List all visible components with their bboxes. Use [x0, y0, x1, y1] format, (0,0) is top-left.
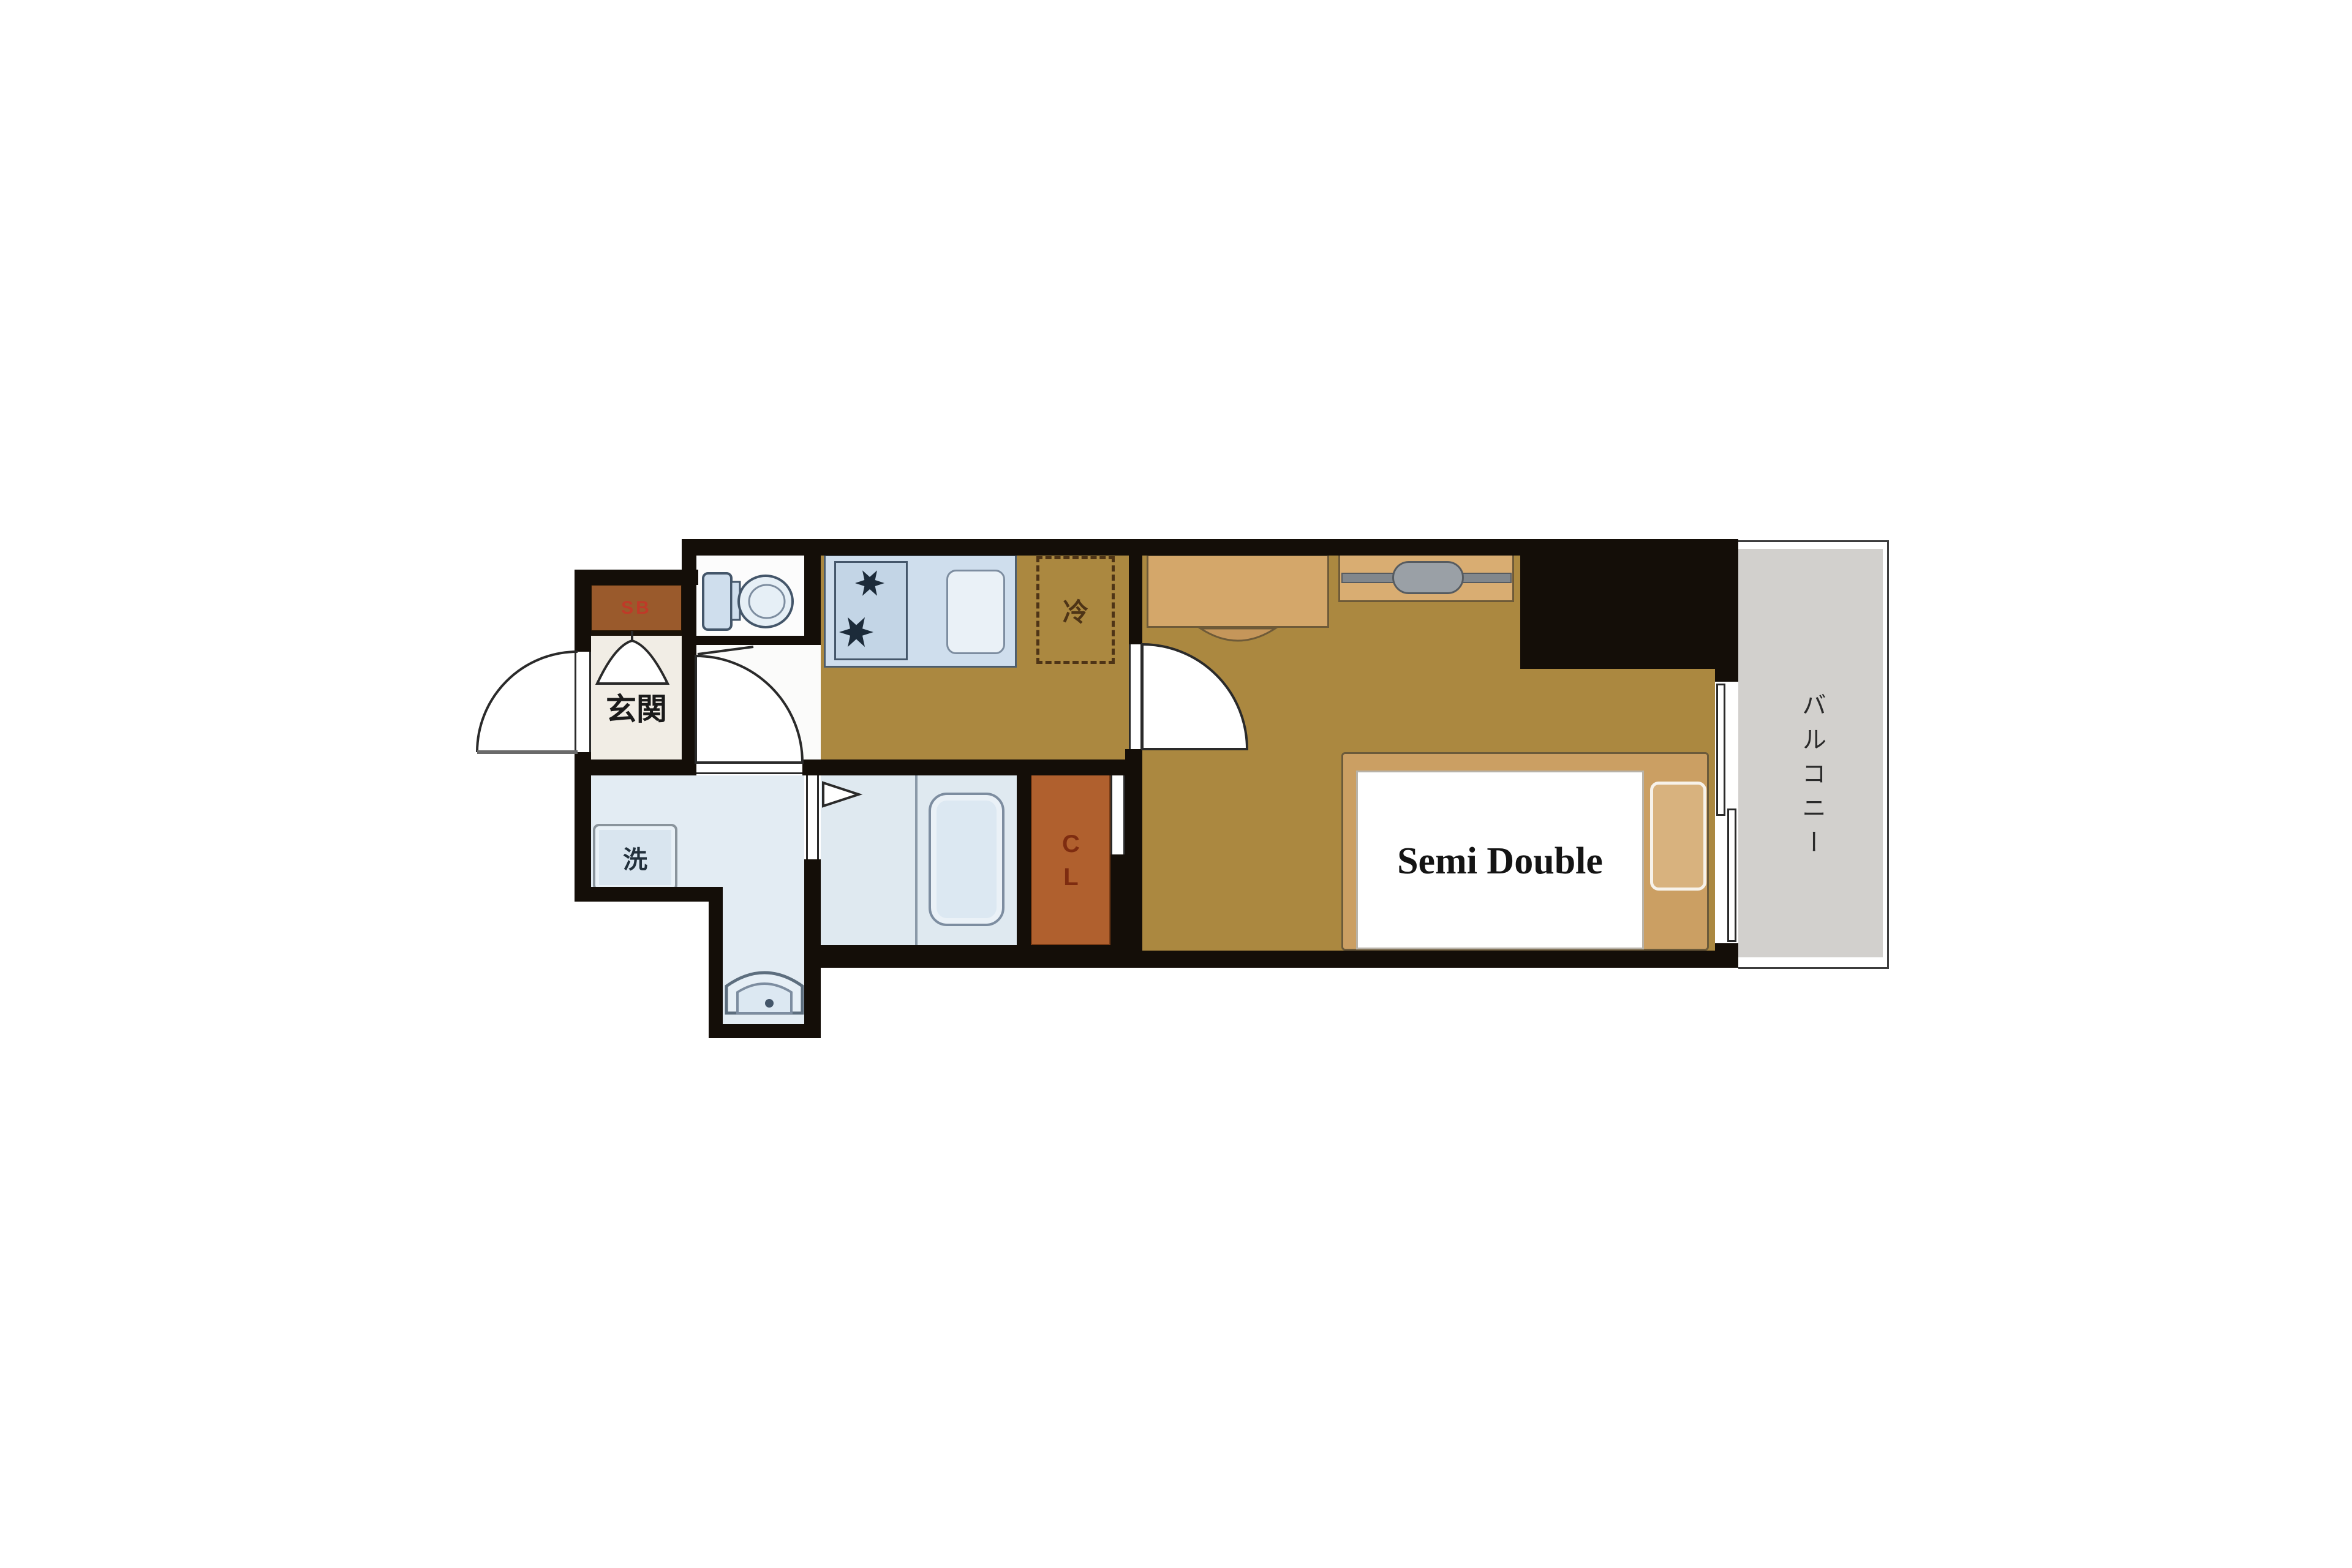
- shoe-box-label: SB: [590, 587, 683, 630]
- wall-toilet-right: [804, 539, 821, 645]
- main-room-door-leaf: [1129, 644, 1142, 749]
- bathroom-folding-door: [806, 775, 819, 859]
- closet-label: CL: [1049, 818, 1092, 910]
- wall-block-topright: [1520, 539, 1738, 669]
- wall-bath-closet-bottom: [804, 945, 1125, 968]
- wall-window-bottom: [1715, 943, 1738, 968]
- stove-unit: [834, 561, 908, 660]
- wall-mainroom-west-upper: [1129, 554, 1142, 644]
- wall-washroom-bottom: [575, 887, 723, 902]
- refrigerator-label: 冷: [1036, 590, 1115, 630]
- wall-mid-left: [575, 759, 696, 775]
- shoe-box-separator: [590, 631, 683, 636]
- entrance-door-opening: [575, 652, 591, 752]
- entrance-label: 玄関: [591, 685, 682, 729]
- washer-label: 洗: [593, 840, 677, 875]
- counter-shelf: [1147, 554, 1329, 628]
- wall-mainroom-bottom: [1125, 951, 1738, 968]
- washroom-lower-floor: [723, 887, 804, 1024]
- bed-pillow: [1650, 782, 1706, 891]
- wall-shoebox-top: [575, 570, 698, 585]
- wall-toilet-bottom: [696, 636, 821, 645]
- wall-mid-right: [802, 759, 1129, 775]
- bathroom-divider-line: [915, 775, 918, 945]
- wall-window-top: [1715, 539, 1738, 682]
- wall-bath-right: [1017, 759, 1031, 945]
- floor-plan-canvas: SB 玄関 冷 洗 CL バルコニー Semi Double: [0, 0, 2352, 1568]
- balcony-label: バルコニー: [1790, 661, 1834, 894]
- kitchen-sink: [946, 570, 1005, 654]
- closet-door: [1110, 775, 1125, 854]
- washroom-sliding-door: [696, 761, 802, 774]
- wall-lower-left: [709, 887, 723, 1038]
- bathtub-icon: [929, 793, 1005, 926]
- sliding-window-pane-2: [1727, 809, 1736, 942]
- hanger-slider: [1392, 561, 1464, 594]
- toilet-room-floor: [696, 554, 804, 636]
- wall-mainroom-west-lower: [1125, 749, 1142, 951]
- sliding-window-pane-1: [1716, 684, 1725, 816]
- bed-size-label: Semi Double: [1356, 832, 1644, 891]
- door-swing-arc-icon: [477, 652, 578, 752]
- wall-entrance-right: [682, 539, 696, 775]
- wall-closet-right-lower: [1110, 854, 1125, 951]
- wall-left-upper: [575, 570, 591, 652]
- hall-floor: [696, 645, 821, 759]
